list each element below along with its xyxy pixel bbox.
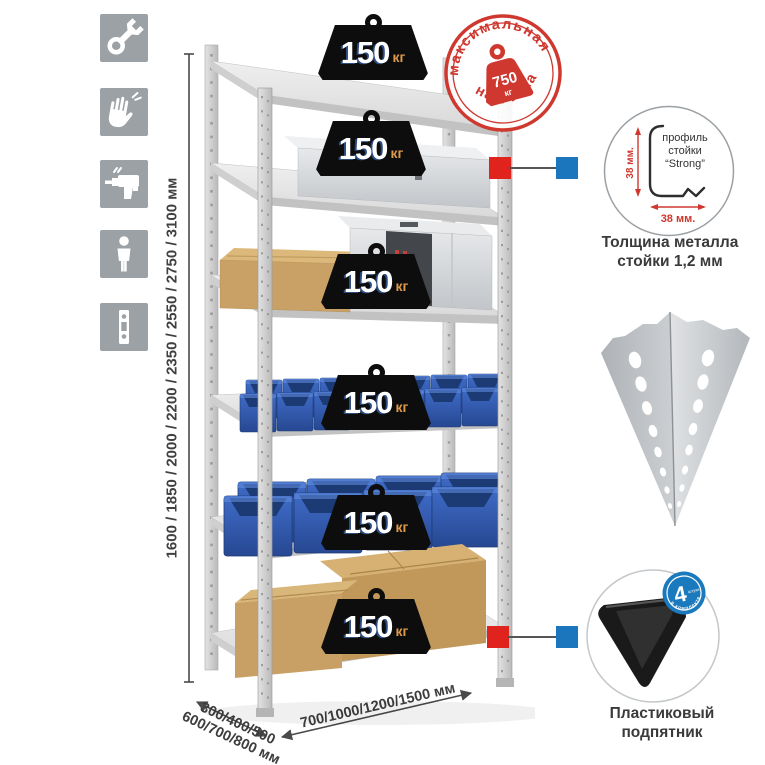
weight-body: 150 кг bbox=[317, 25, 429, 80]
weight-body: 150 кг bbox=[320, 599, 432, 654]
weight-body: 150 кг bbox=[320, 254, 432, 309]
wrench-icon bbox=[100, 14, 148, 62]
load-value: 150 bbox=[344, 385, 393, 421]
shelf-load-weight: 150 кг bbox=[320, 364, 432, 430]
foot-caption-line2: подпятник bbox=[621, 724, 702, 741]
drill-icon bbox=[100, 160, 148, 208]
rack-post-icon bbox=[100, 303, 148, 351]
gloves-icon bbox=[100, 88, 148, 136]
floor-shadow bbox=[205, 701, 535, 725]
shelf-load-weight: 150 кг bbox=[317, 14, 429, 80]
profile-title-2: стойки bbox=[668, 145, 702, 157]
callout-marker-red-top bbox=[489, 157, 511, 179]
max-load-stamp: максимальная нагрузка 750 кг bbox=[440, 10, 566, 136]
weight-body: 150 кг bbox=[315, 121, 427, 176]
profile-caption: Толщина металла стойки 1,2 мм bbox=[585, 233, 755, 272]
profile-title-3: “Strong” bbox=[665, 158, 705, 170]
shelf-load-weight: 150 кг bbox=[320, 484, 432, 550]
height-dimension-label: 1600 / 1850 / 2000 / 2200 / 2350 / 2550 … bbox=[164, 178, 181, 559]
profile-dim-vertical: 38 мм. bbox=[625, 147, 636, 179]
quantity-badge: 4 штуки в комплекте bbox=[661, 570, 707, 616]
weight-body: 150 кг bbox=[320, 375, 432, 430]
load-value: 150 bbox=[341, 35, 390, 71]
person-icon bbox=[100, 230, 148, 278]
upright-post-image bbox=[595, 298, 760, 538]
profile-dim-horizontal: 38 мм. bbox=[661, 213, 696, 225]
load-unit: кг bbox=[395, 399, 408, 415]
shelf-load-weight: 150 кг bbox=[315, 110, 427, 176]
foot-caption: Пластиковый подпятник bbox=[592, 704, 732, 743]
shelf-load-weight: 150 кг bbox=[320, 588, 432, 654]
callout-marker-red-bottom bbox=[487, 626, 509, 648]
callout-line-bottom bbox=[507, 636, 558, 638]
load-value: 150 bbox=[339, 131, 388, 167]
load-unit: кг bbox=[395, 278, 408, 294]
load-value: 150 bbox=[344, 609, 393, 645]
foot-caption-line1: Пластиковый bbox=[610, 705, 715, 722]
profile-title-1: профиль bbox=[662, 132, 708, 144]
profile-caption-line2: стойки 1,2 мм bbox=[617, 253, 722, 270]
load-value: 150 bbox=[344, 505, 393, 541]
load-unit: кг bbox=[395, 623, 408, 639]
callout-marker-blue-top bbox=[556, 157, 578, 179]
profile-detail-circle: 38 мм. 38 мм. профиль стойки “Strong” bbox=[602, 104, 736, 238]
load-unit: кг bbox=[390, 145, 403, 161]
load-unit: кг bbox=[395, 519, 408, 535]
callout-line-top bbox=[509, 167, 558, 169]
infographic-root: 1600 / 1850 / 2000 / 2200 / 2350 / 2550 … bbox=[0, 0, 765, 765]
load-unit: кг bbox=[392, 49, 405, 65]
callout-marker-blue-bottom bbox=[556, 626, 578, 648]
shelf-load-weight: 150 кг bbox=[320, 243, 432, 309]
weight-body: 150 кг bbox=[320, 495, 432, 550]
load-value: 150 bbox=[344, 264, 393, 300]
